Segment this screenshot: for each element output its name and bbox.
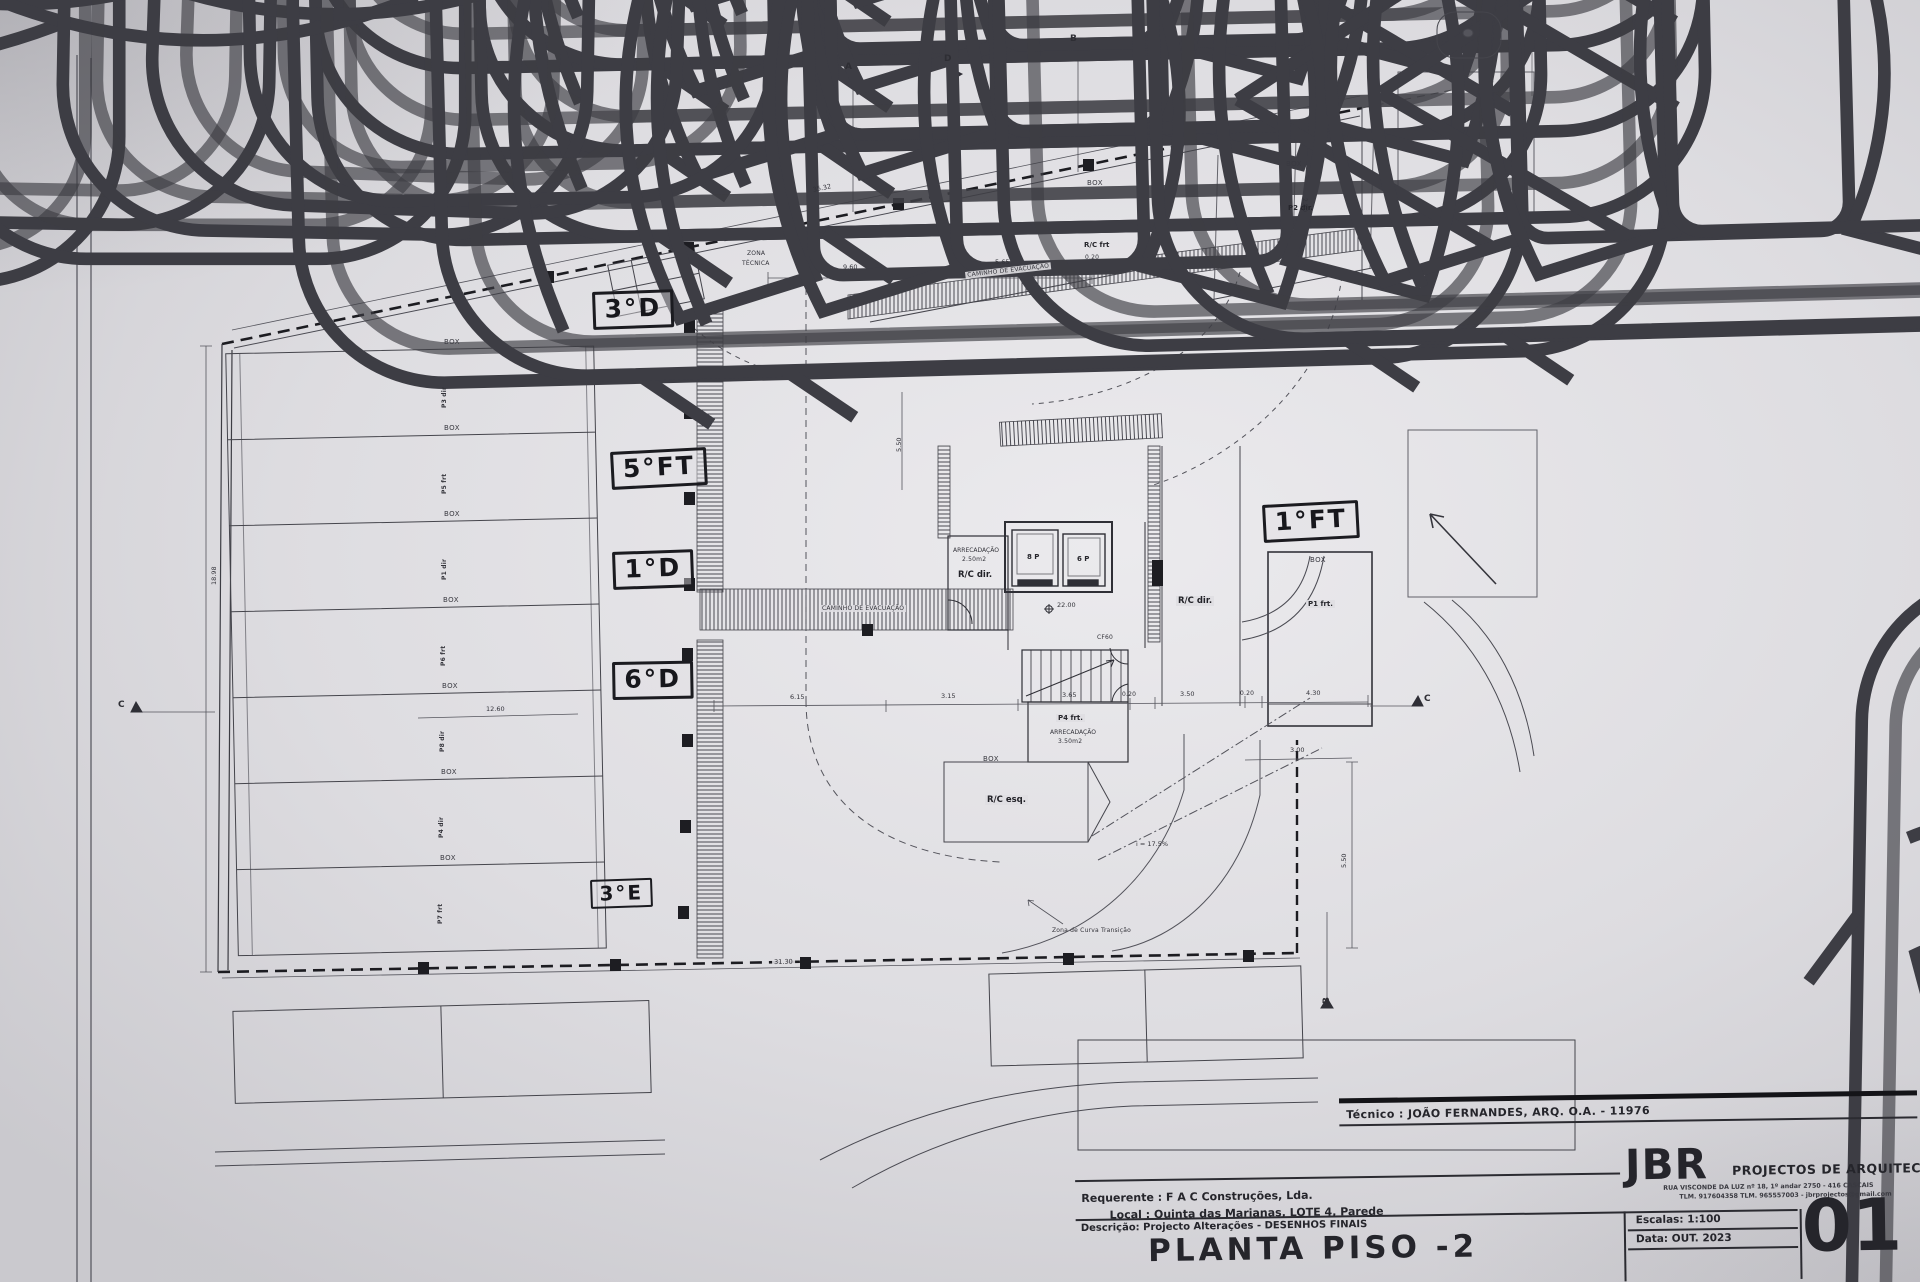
handwritten-1ft: 1°FT [1262, 500, 1360, 542]
dim-ramp-h: 5.50 [1340, 854, 1348, 868]
separator-line-1 [1075, 1172, 1620, 1181]
box-label-p1: BOX [1310, 556, 1326, 564]
elevator-8p-label: 8 P [1027, 553, 1039, 561]
zona-curva-label: Zona de Curva Transição [1052, 927, 1131, 934]
dim-aisle-a: 6.15 [790, 693, 804, 701]
dim-seg-b: 5.65 [995, 258, 1009, 266]
arrecadacao-small-area: 2.50m2 [962, 556, 986, 563]
dim-gap-top: 0.20 [1085, 254, 1099, 261]
dim-bay-a: 3.50 [1180, 690, 1194, 698]
parking-bays-bottom-left [233, 1001, 651, 1104]
arrecadacao-big-area: 3.50m2 [1058, 738, 1082, 745]
cf60-label: CF60 [1097, 634, 1113, 641]
rc-esq-label: R/C esq. [985, 795, 1028, 805]
columns [418, 126, 1254, 974]
p-row-7: P7 frt [437, 904, 444, 924]
box-label-p2: BOX [1286, 160, 1302, 168]
dim-aisle-c: 3.65 [1062, 691, 1076, 699]
box-label-top: BOX [1087, 179, 1103, 187]
arrecadacao-small-label: ARRECADAÇÃO [953, 547, 999, 554]
zona-tecnica-label-2: TÉCNICA [742, 260, 770, 267]
title-block: Técnico : JOÃO FERNANDES, ARQ. O.A. - 11… [1074, 1088, 1920, 1282]
data-underline [1628, 1246, 1798, 1250]
photographed-drawing: ZONA TÉCNICA 35.32 9.60 5.65 0.20 CAMINH… [0, 0, 1920, 1282]
dim-bay-gap: 0.20 [1240, 690, 1254, 697]
dim-depth: 2.80 [1301, 198, 1308, 212]
dim-aisle-h: 5.50 [895, 438, 903, 452]
rc-dir-car-label: R/C dir. [1176, 596, 1214, 606]
handwritten-6d: 6°D [612, 661, 693, 700]
separator-vertical-1 [1624, 1211, 1626, 1281]
p-row-6: P4 dir [438, 817, 445, 838]
dim-aisle-b: 3.15 [941, 692, 955, 700]
plan-linework [0, 0, 1920, 1282]
cars [0, 0, 1920, 1282]
box-row-1: BOX [444, 338, 460, 346]
box-row-3: BOX [444, 510, 460, 518]
drawing-title: PLANTA PISO -2 [1148, 1228, 1479, 1269]
p1-frt-label: P1 frt. [1306, 600, 1335, 608]
elevator-6p-label: 6 P [1077, 555, 1089, 563]
handwritten-3e: 3°E [590, 878, 653, 909]
handwritten-1d: 1°D [612, 549, 694, 589]
section-marker-c-left: C [118, 700, 125, 710]
section-marker-d: D [944, 54, 951, 64]
box-row-4: BOX [443, 596, 459, 604]
dim-grid-width: 12.60 [484, 705, 507, 713]
firm-subtitle: PROJECTOS DE ARQUITECTURA [1732, 1160, 1920, 1178]
escalas-underline [1628, 1227, 1798, 1231]
dim-left-total: 18.98 [210, 566, 218, 585]
box-row-6: BOX [441, 768, 457, 776]
tecnico-line: Técnico : JOÃO FERNANDES, ARQ. O.A. - 11… [1346, 1104, 1650, 1121]
box-label-esq: BOX [983, 755, 999, 763]
p4-frt-label: P4 frt. [1056, 714, 1085, 722]
box-row-7: BOX [440, 854, 456, 862]
p-row-2: P5 frt [441, 474, 448, 494]
section-marker-a: A [845, 62, 852, 72]
zona-tecnica-label-1: ZONA [747, 250, 765, 257]
data-line: Data: OUT. 2023 [1636, 1232, 1732, 1245]
box-row-2: BOX [444, 424, 460, 432]
firm-logo-text: JBR [1625, 1139, 1709, 1189]
section-marker-c-right: C [1424, 694, 1431, 704]
dim-right-w: 3.00 [1290, 746, 1304, 754]
rc-frt-label: R/C frt [1084, 241, 1109, 249]
handwritten-5ft: 5°FT [610, 447, 708, 489]
sheet-number: 01 [1801, 1189, 1902, 1262]
arrecadacao-big-label: ARRECADAÇÃO [1050, 729, 1096, 736]
dim-seg-a: 9.60 [843, 263, 857, 271]
caminho-evacuacao-mid: CAMINHO DE EVACUAÇÃO [820, 605, 906, 612]
handwritten-3d: 3°D [592, 289, 674, 329]
ramp-slope-label: i = 17.5% [1136, 840, 1168, 848]
section-marker-b-bottom: B [1322, 997, 1332, 1004]
p-row-1: P3 dir [441, 387, 448, 408]
section-marker-b-top: B [1070, 34, 1077, 44]
box-row-5: BOX [442, 682, 458, 690]
dim-bottom-total: 31.30 [772, 958, 795, 966]
p-row-5: P8 dir [439, 731, 446, 752]
p-row-4: P6 frt [440, 646, 447, 666]
requerente-line: Requerente : F A C Construções, Lda. [1081, 1189, 1312, 1205]
escalas-line: Escalas: 1:100 [1636, 1213, 1721, 1226]
dim-bay-b: 4.30 [1306, 689, 1320, 697]
parking-bays-bottom-middle [989, 966, 1303, 1066]
level-mark: 22.00 [1057, 601, 1076, 609]
p-row-3: P1 dir [441, 559, 448, 580]
parking-grid-left [226, 346, 607, 956]
dim-aisle-gap1: 0.20 [1122, 691, 1136, 698]
rc-dir-room-label: R/C dir. [958, 570, 992, 580]
